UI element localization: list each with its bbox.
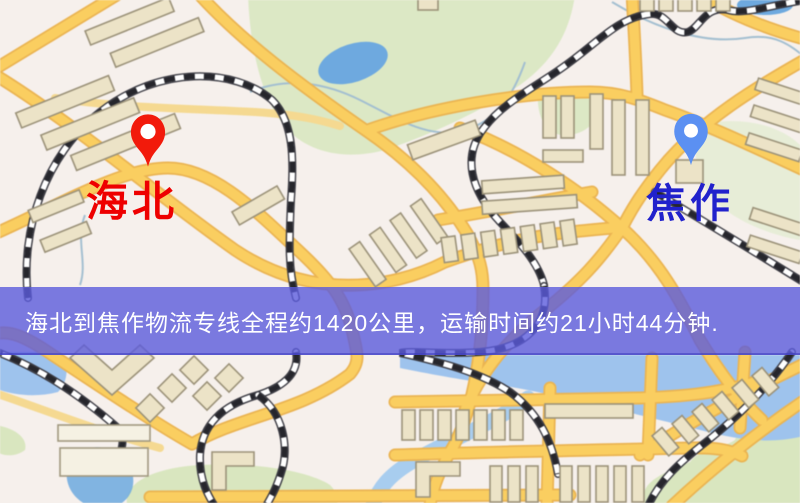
- route-info-text: 海北到焦作物流专线全程约1420公里，运输时间约21小时44分钟.: [0, 304, 719, 338]
- blue-pin-icon: [669, 113, 713, 167]
- destination-label: 焦作: [646, 184, 734, 224]
- route-map: 海北 焦作 海北到焦作物流专线全程约1420公里，运输时间约21小时44分钟.: [0, 0, 800, 503]
- red-pin-icon: [129, 112, 167, 170]
- route-info-banner: 海北到焦作物流专线全程约1420公里，运输时间约21小时44分钟.: [0, 287, 800, 355]
- origin-pin: [129, 112, 167, 170]
- destination-pin: [669, 113, 713, 167]
- map-image: [0, 0, 800, 503]
- origin-label: 海北: [86, 181, 178, 223]
